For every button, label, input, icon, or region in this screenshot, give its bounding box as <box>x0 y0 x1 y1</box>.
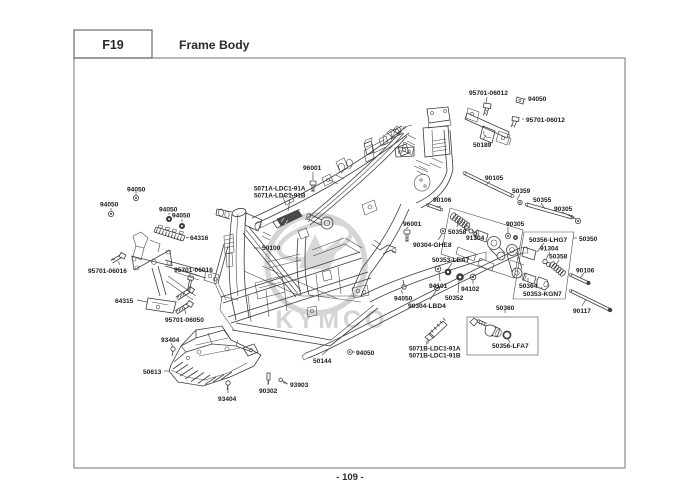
svg-text:F19: F19 <box>102 38 124 52</box>
svg-text:90106: 90106 <box>576 268 595 275</box>
svg-text:95701-06012: 95701-06012 <box>469 90 508 97</box>
svg-text:5071A-LDC1-91B: 5071A-LDC1-91B <box>254 193 306 200</box>
svg-text:64315: 64315 <box>115 298 134 305</box>
svg-text:50353-LEA7: 50353-LEA7 <box>432 257 470 264</box>
svg-text:90105: 90105 <box>485 175 504 182</box>
svg-text:64316: 64316 <box>190 235 209 242</box>
svg-text:96001: 96001 <box>303 165 322 172</box>
svg-text:91304: 91304 <box>540 246 559 253</box>
svg-text:90117: 90117 <box>573 308 591 315</box>
svg-text:94050: 94050 <box>394 296 413 303</box>
svg-text:94102: 94102 <box>461 286 480 293</box>
svg-text:94101: 94101 <box>429 283 448 290</box>
svg-text:- 109 -: - 109 - <box>336 472 363 483</box>
svg-text:50350: 50350 <box>579 236 598 243</box>
svg-text:50353-KGN7: 50353-KGN7 <box>523 291 562 298</box>
svg-text:50358: 50358 <box>448 229 467 236</box>
svg-text:90302: 90302 <box>259 388 278 395</box>
svg-text:50144: 50144 <box>313 358 332 365</box>
svg-text:50356-LHG7: 50356-LHG7 <box>529 237 567 244</box>
svg-text:KYMCO: KYMCO <box>275 306 388 334</box>
svg-text:93404: 93404 <box>161 337 180 344</box>
svg-text:95701-06012: 95701-06012 <box>526 117 565 124</box>
svg-text:50100: 50100 <box>262 245 281 252</box>
svg-text:50613: 50613 <box>143 369 162 376</box>
svg-text:50358: 50358 <box>549 254 568 261</box>
svg-text:94050: 94050 <box>528 96 547 103</box>
svg-text:90304-GHE8: 90304-GHE8 <box>413 242 452 249</box>
svg-text:50355: 50355 <box>533 197 552 204</box>
svg-text:50359: 50359 <box>512 188 531 195</box>
svg-text:94050: 94050 <box>100 202 119 209</box>
svg-text:94050: 94050 <box>127 187 146 194</box>
svg-text:50352: 50352 <box>445 295 464 302</box>
svg-text:95701-06016: 95701-06016 <box>88 268 127 275</box>
svg-text:91304: 91304 <box>466 235 485 242</box>
svg-text:50189: 50189 <box>473 142 492 149</box>
svg-text:95701-06016: 95701-06016 <box>174 267 213 274</box>
svg-text:93404: 93404 <box>218 396 237 403</box>
svg-text:93903: 93903 <box>290 382 309 389</box>
svg-text:50364: 50364 <box>519 283 538 290</box>
svg-text:5071B-LDC1-91A: 5071B-LDC1-91A <box>409 346 461 353</box>
svg-text:50356-LFA7: 50356-LFA7 <box>492 343 529 350</box>
svg-text:95701-06050: 95701-06050 <box>165 317 204 324</box>
svg-text:90106: 90106 <box>433 197 452 204</box>
svg-text:90304-LBD4: 90304-LBD4 <box>408 303 446 310</box>
svg-text:50360: 50360 <box>496 305 515 312</box>
svg-text:94050: 94050 <box>356 350 375 357</box>
svg-text:5071A-LDC1-91A: 5071A-LDC1-91A <box>254 186 306 193</box>
svg-text:Frame Body: Frame Body <box>179 38 250 52</box>
svg-text:96001: 96001 <box>403 221 422 228</box>
svg-text:5071B-LDC1-91B: 5071B-LDC1-91B <box>409 353 461 360</box>
svg-text:90305: 90305 <box>506 221 525 228</box>
svg-text:90305: 90305 <box>554 206 573 213</box>
svg-text:94050: 94050 <box>172 213 191 220</box>
